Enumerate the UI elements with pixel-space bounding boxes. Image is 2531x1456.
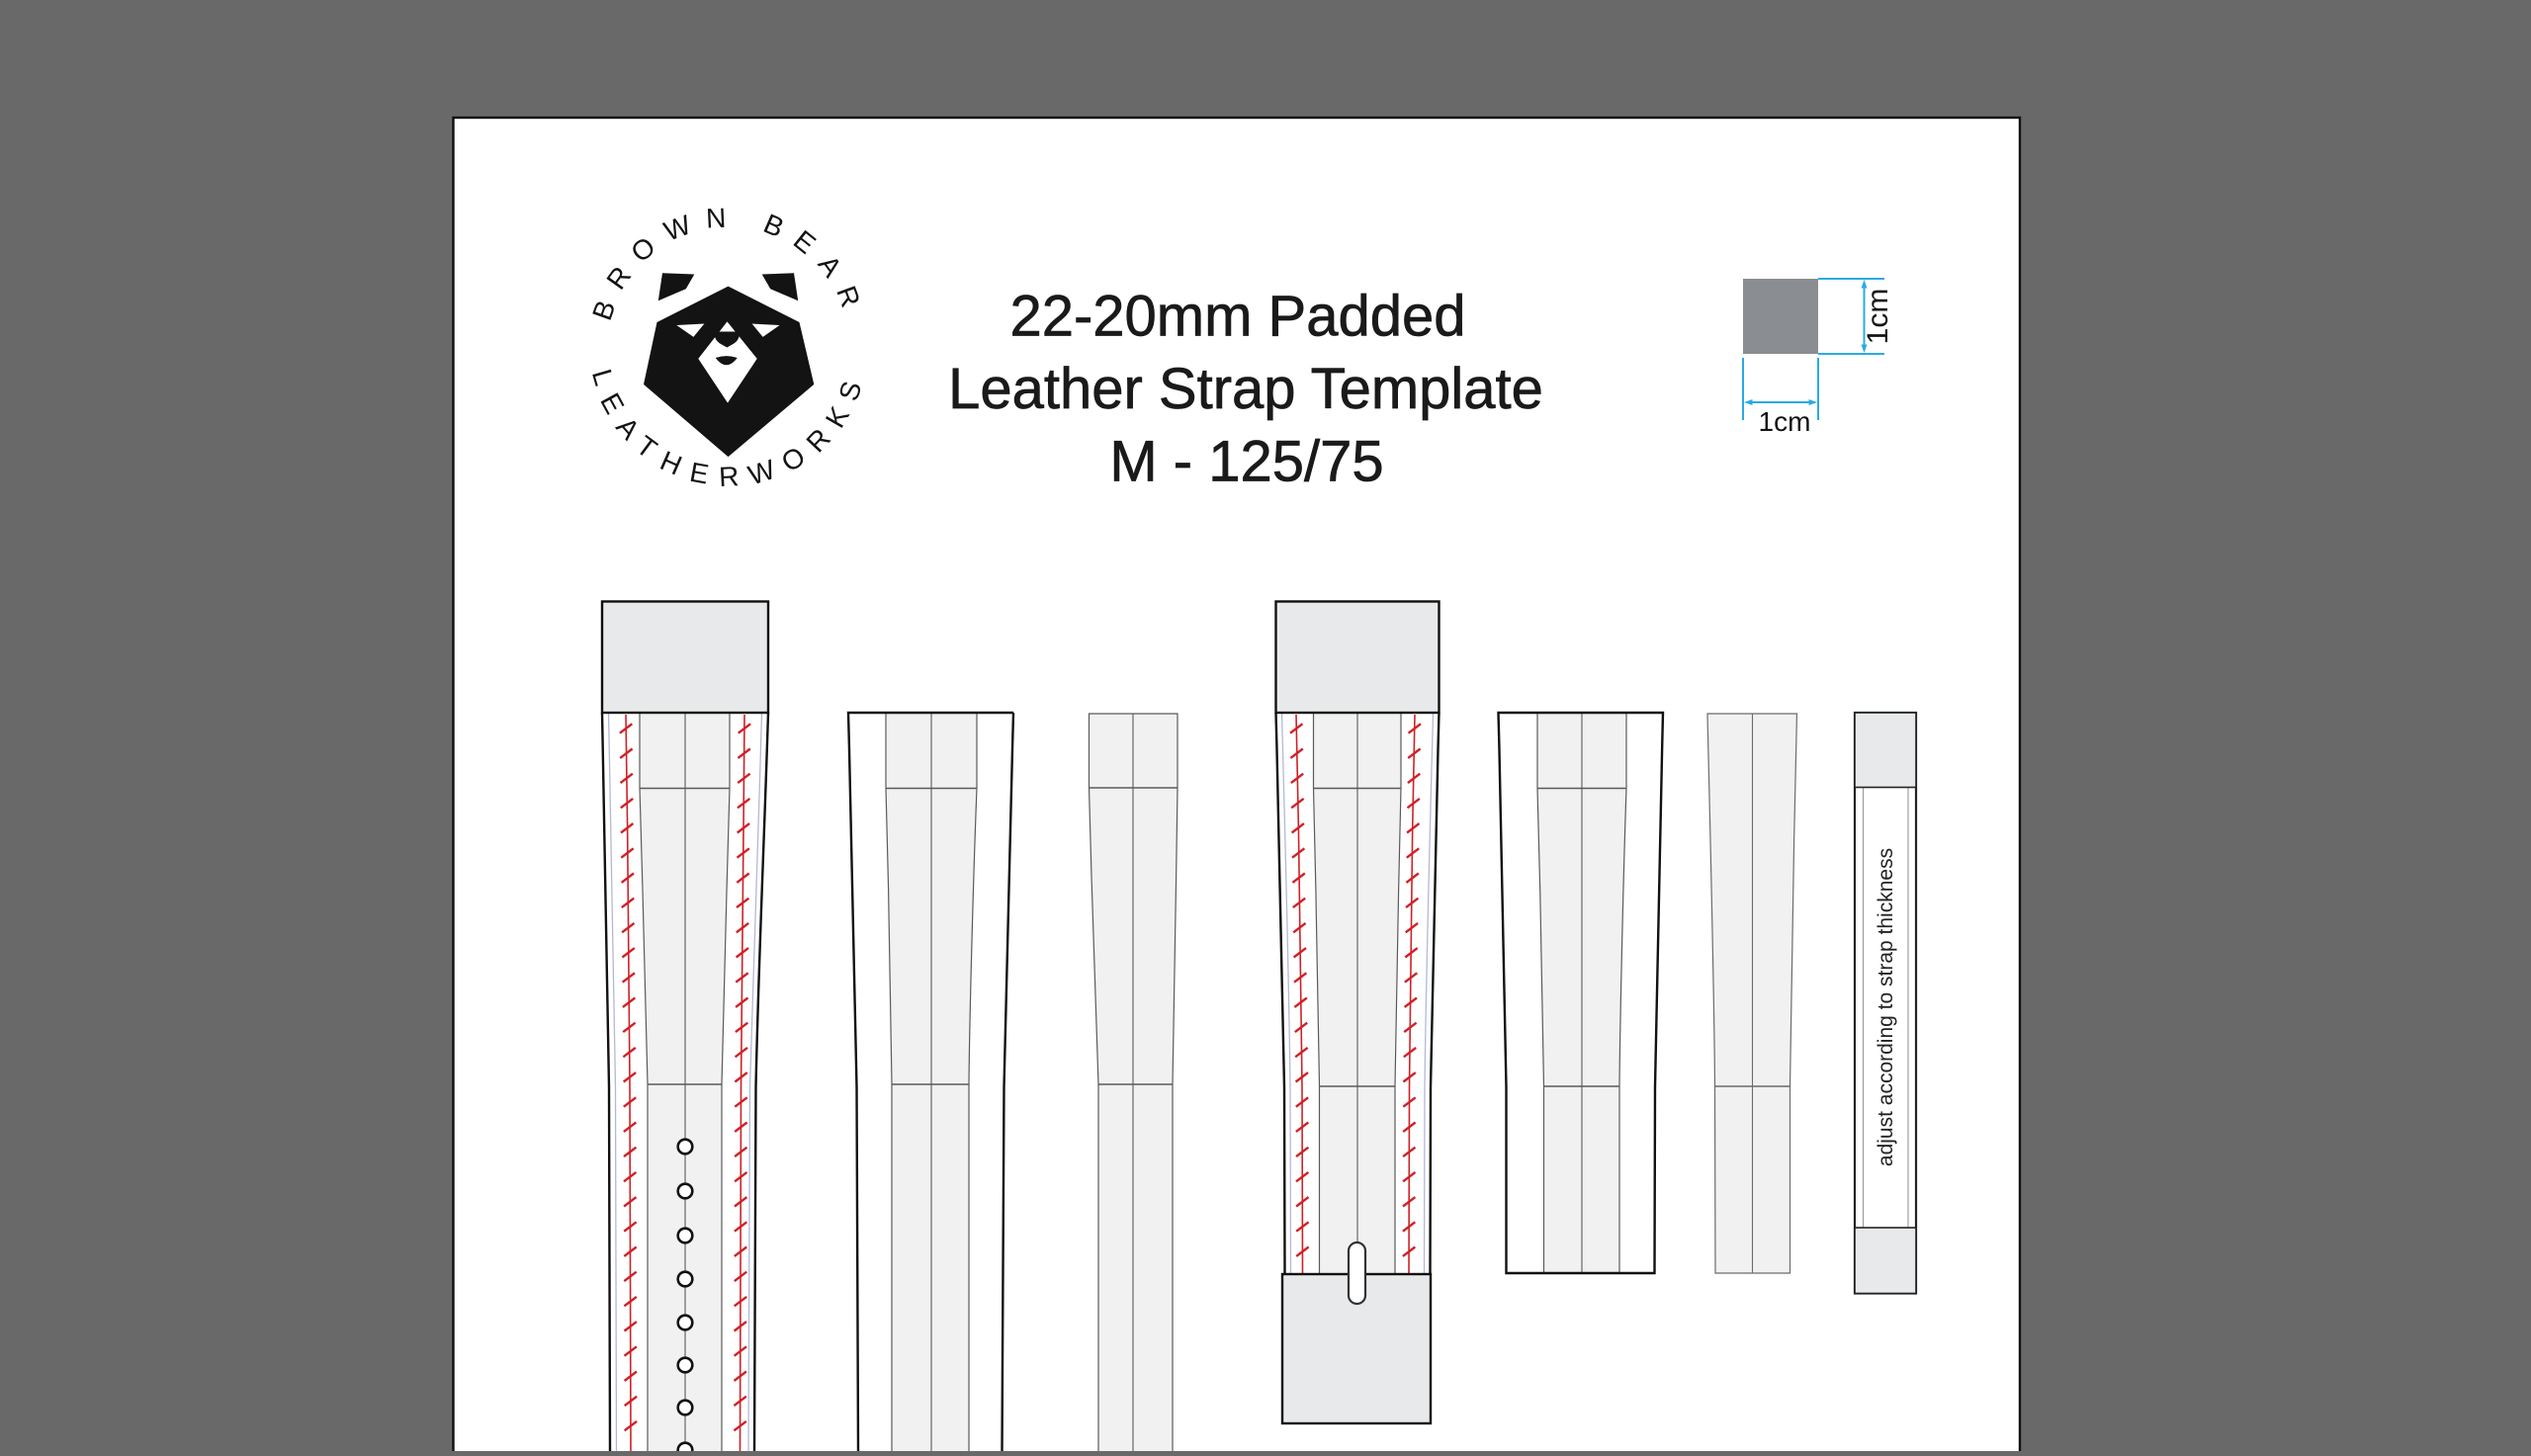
svg-text:22-20mm Padded: 22-20mm Padded — [1009, 285, 1465, 349]
svg-text:1cm: 1cm — [1862, 289, 1894, 345]
svg-text:adjust according to strap thic: adjust according to strap thickness — [1875, 848, 1897, 1166]
svg-text:1cm: 1cm — [1759, 406, 1811, 437]
svg-text:M - 125/75: M - 125/75 — [1109, 430, 1383, 494]
svg-text:Leather Strap Template: Leather Strap Template — [948, 357, 1543, 421]
